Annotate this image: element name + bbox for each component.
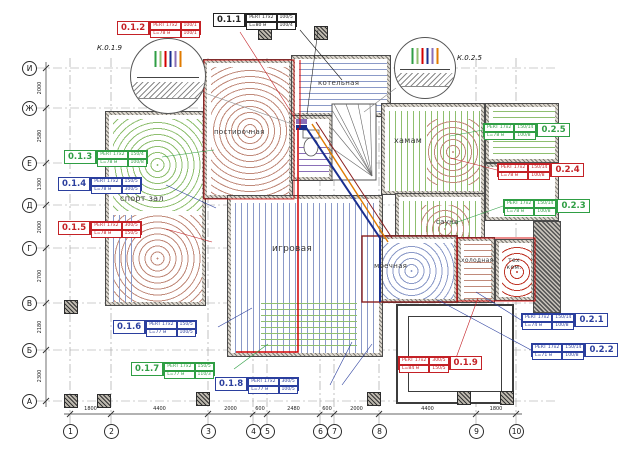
floorplan-heating-drawing: К.0.1.9 К.0.2.5 0.1.1PERT 17x2100/5L=80 …: [0, 0, 620, 465]
leader-line: [166, 185, 216, 208]
pipe-bar-icon: [160, 51, 162, 67]
room-label-sport-hall: спорт зал: [120, 194, 164, 203]
pipe-bar-icon: [165, 51, 167, 67]
circuit-number: 0.2.1: [575, 313, 607, 327]
circuit-data-table: PERT 17x2150/5L=77 м110/3: [163, 362, 215, 376]
circuit-data-cell: PERT 17x2: [246, 14, 276, 22]
circuit-data-cell: 150/14: [514, 124, 536, 132]
insulation-hatch: [395, 73, 455, 87]
circuit-number: 0.1.5: [58, 221, 90, 235]
circuit-data-cell: 100/1: [181, 22, 200, 30]
circuit-data-table: PERT 17x2150/5L=77 м100/5: [145, 320, 197, 334]
pipe-bar-icon: [427, 48, 429, 64]
circuit-data-cell: L=78 м: [150, 30, 180, 38]
leader-line: [162, 150, 214, 157]
leader-line: [330, 342, 352, 385]
circuit-data-table: PERT 17x2300/5L=78 м150/5: [90, 221, 142, 235]
circuit-data-cell: PERT 17x2: [97, 151, 127, 159]
circuit-tag-0.1.3: 0.1.3PERT 17x2150/4L=78 м100/8: [64, 150, 148, 164]
leader-line: [300, 30, 342, 80]
leader-line: [240, 32, 295, 118]
circuit-number: 0.2.4: [551, 163, 583, 177]
pipe-bar-icon: [432, 48, 434, 64]
circuit-data-cell: PERT 17x2: [399, 357, 429, 365]
circuit-data-table: PERT 17x2150/14L=78 м100/8: [503, 199, 557, 213]
circuit-number: 0.2.3: [557, 199, 589, 213]
circuit-data-cell: 150/5: [122, 178, 141, 186]
circuit-data-cell: 100/1: [181, 30, 200, 38]
circuit-tag-0.1.2: 0.1.2PERT 17x2100/1L=78 м100/1: [117, 21, 201, 35]
pipe-bar-icon: [180, 51, 182, 67]
circuit-data-cell: 110/3: [195, 371, 214, 379]
room-label-playroom: игровая: [272, 244, 312, 254]
circuit-data-cell: 100/8: [562, 352, 584, 360]
circuit-data-cell: L=78 м: [504, 208, 534, 216]
circuit-data-table: PERT 17x2150/14L=71 м100/8: [531, 343, 585, 357]
detail-callout-label: К.0.1.9: [97, 44, 122, 52]
circuit-data-cell: 100/8: [128, 159, 147, 167]
circuit-data-table: PERT 17x2300/5L=77 м100/5: [247, 377, 299, 391]
circuit-data-cell: L=74 м: [522, 322, 552, 330]
circuit-number: 0.1.4: [58, 177, 90, 191]
pipe-bar-icon: [422, 48, 424, 64]
circuit-data-cell: 300/5: [122, 222, 141, 230]
leader-line: [202, 92, 292, 124]
circuit-data-cell: L=77 м: [146, 329, 176, 337]
circuit-data-cell: 150/14: [534, 200, 556, 208]
circuit-data-table: PERT 17x2150/14L=78 м100/8: [497, 163, 551, 177]
circuit-data-cell: L=78 м: [498, 172, 528, 180]
detail-circle-k025: [394, 37, 456, 99]
circuit-number: 0.2.2: [585, 343, 617, 357]
circuit-data-cell: L=71 м: [532, 352, 562, 360]
circuit-data-table: PERT 17x2100/1L=78 м100/1: [149, 21, 201, 35]
circuit-data-cell: PERT 17x2: [504, 200, 534, 208]
circuit-data-cell: 100/5: [279, 386, 298, 394]
pipe-bar-icon: [437, 48, 439, 64]
circuit-number: 0.1.6: [113, 320, 145, 334]
manifold-block: [296, 119, 307, 124]
leader-line: [456, 298, 478, 358]
circuit-data-cell: 150/4: [128, 151, 147, 159]
circuit-tag-0.2.2: PERT 17x2150/14L=71 м100/80.2.2: [531, 343, 618, 357]
circuit-number: 0.1.3: [64, 150, 96, 164]
circuit-data-cell: L=78 м: [91, 230, 121, 238]
circuit-data-cell: 100/8: [534, 208, 556, 216]
circuit-data-cell: PERT 17x2: [522, 314, 552, 322]
circuit-tag-0.1.9: PERT 17x2300/5L=84 м150/50.1.9: [398, 356, 482, 370]
circuit-tag-0.2.4: PERT 17x2150/14L=78 м100/80.2.4: [497, 163, 584, 177]
circuit-tag-0.1.7: 0.1.7PERT 17x2150/5L=77 м110/3: [131, 362, 215, 376]
circuit-data-cell: L=84 м: [399, 365, 429, 373]
leader-line: [450, 130, 483, 136]
slab-line: [137, 77, 199, 78]
room-label-tech: тех ком.: [501, 258, 527, 271]
leader-line: [438, 300, 531, 350]
leader-line: [218, 308, 252, 327]
room-label-boiler: котельная: [318, 79, 359, 87]
circuit-data-cell: 100/8: [552, 322, 574, 330]
room-label-laundry: постирочная: [214, 128, 265, 136]
detail-circle-k019: [130, 38, 206, 114]
leader-line: [450, 158, 497, 170]
leader-line: [364, 88, 396, 112]
circuit-data-cell: PERT 17x2: [150, 22, 180, 30]
circuit-data-cell: 150/5: [195, 363, 214, 371]
circuit-data-cell: 100/5: [177, 329, 196, 337]
circuit-number: 0.1.7: [131, 362, 163, 376]
manifold-pipes-icon: [412, 48, 439, 64]
circuit-data-cell: PERT 17x2: [498, 164, 528, 172]
circuit-data-cell: 150/14: [528, 164, 550, 172]
circuit-number: 0.2.5: [537, 123, 569, 137]
manifold-pipes-icon: [155, 51, 182, 67]
circuit-data-cell: PERT 17x2: [164, 363, 194, 371]
pipe-bar-icon: [417, 48, 419, 64]
circuit-data-cell: L=78 м: [91, 186, 121, 194]
leader-line: [476, 292, 521, 320]
circuit-data-cell: 150/14: [552, 314, 574, 322]
room-label-hamam: хамам: [394, 136, 422, 145]
circuit-data-cell: 100/4: [277, 22, 296, 30]
circuit-data-cell: 100/8: [514, 132, 536, 140]
supply-pipe: [236, 128, 298, 352]
circuit-data-cell: PERT 17x2: [91, 222, 121, 230]
circuit-number: 0.1.2: [117, 21, 149, 35]
leader-line: [166, 229, 212, 242]
circuit-data-cell: PERT 17x2: [91, 178, 121, 186]
circuit-data-cell: L=80 м: [246, 22, 276, 30]
room-label-washing: моечная: [374, 262, 407, 270]
pipe-bar-icon: [175, 51, 177, 67]
circuit-data-cell: L=77 м: [164, 371, 194, 379]
circuit-data-table: PERT 17x2300/5L=84 м150/5: [398, 356, 450, 370]
circuit-data-cell: PERT 17x2: [146, 321, 176, 329]
circuit-data-cell: 300/5: [122, 186, 141, 194]
room-label-cold: холодная: [461, 258, 489, 265]
circuit-data-cell: 150/5: [122, 230, 141, 238]
circuit-data-cell: L=78 м: [97, 159, 127, 167]
circuit-tag-0.1.6: 0.1.6PERT 17x2150/5L=77 м100/5: [113, 320, 197, 334]
circuit-data-table: PERT 17x2150/4L=78 м100/8: [96, 150, 148, 164]
circuit-data-cell: 100/5: [277, 14, 296, 22]
leader-line: [234, 344, 268, 369]
leader-line: [452, 206, 503, 224]
circuit-data-cell: L=77 м: [248, 386, 278, 394]
circuit-data-table: PERT 17x2100/5L=80 м100/4: [245, 13, 297, 27]
circuit-tag-0.1.5: 0.1.5PERT 17x2300/5L=78 м150/5: [58, 221, 142, 235]
circuit-data-cell: 150/14: [562, 344, 584, 352]
circuit-data-cell: PERT 17x2: [484, 124, 514, 132]
insulation-hatch: [131, 82, 205, 99]
circuit-data-cell: PERT 17x2: [532, 344, 562, 352]
circuit-tag-0.1.1: 0.1.1PERT 17x2100/5L=80 м100/4: [213, 13, 297, 27]
room-label-sauna: сауна: [436, 218, 459, 226]
circuit-tag-0.2.5: PERT 17x2150/14L=78 м100/80.2.5: [483, 123, 570, 137]
circuit-data-cell: 100/8: [528, 172, 550, 180]
pipe-bar-icon: [155, 51, 157, 67]
leader-line: [307, 30, 318, 114]
leader-line: [342, 344, 372, 385]
circuit-data-table: PERT 17x2150/14L=78 м100/8: [483, 123, 537, 137]
circuit-tag-0.2.1: PERT 17x2150/14L=74 м100/80.2.1: [521, 313, 608, 327]
slab-line: [400, 69, 450, 70]
circuit-number: 0.1.1: [213, 13, 245, 27]
circuit-data-cell: 150/5: [429, 365, 448, 373]
circuit-tag-0.1.8: 0.1.8PERT 17x2300/5L=77 м100/5: [215, 377, 299, 391]
detail-callout-label: К.0.2.5: [457, 54, 482, 62]
circuit-data-cell: 300/5: [279, 378, 298, 386]
circuit-data-cell: PERT 17x2: [248, 378, 278, 386]
pipe-bar-icon: [170, 51, 172, 67]
circuit-data-table: PERT 17x2150/5L=78 м300/5: [90, 177, 142, 191]
circuit-tag-0.1.4: 0.1.4PERT 17x2150/5L=78 м300/5: [58, 177, 142, 191]
circuit-number: 0.1.9: [450, 356, 482, 370]
circuit-data-cell: 300/5: [429, 357, 448, 365]
circuit-data-cell: 150/5: [177, 321, 196, 329]
circuit-tag-0.2.3: PERT 17x2150/14L=78 м100/80.2.3: [503, 199, 590, 213]
circuit-number: 0.1.8: [215, 377, 247, 391]
circuit-data-cell: L=78 м: [484, 132, 514, 140]
pipe-bar-icon: [412, 48, 414, 64]
circuit-data-table: PERT 17x2150/14L=74 м100/8: [521, 313, 575, 327]
